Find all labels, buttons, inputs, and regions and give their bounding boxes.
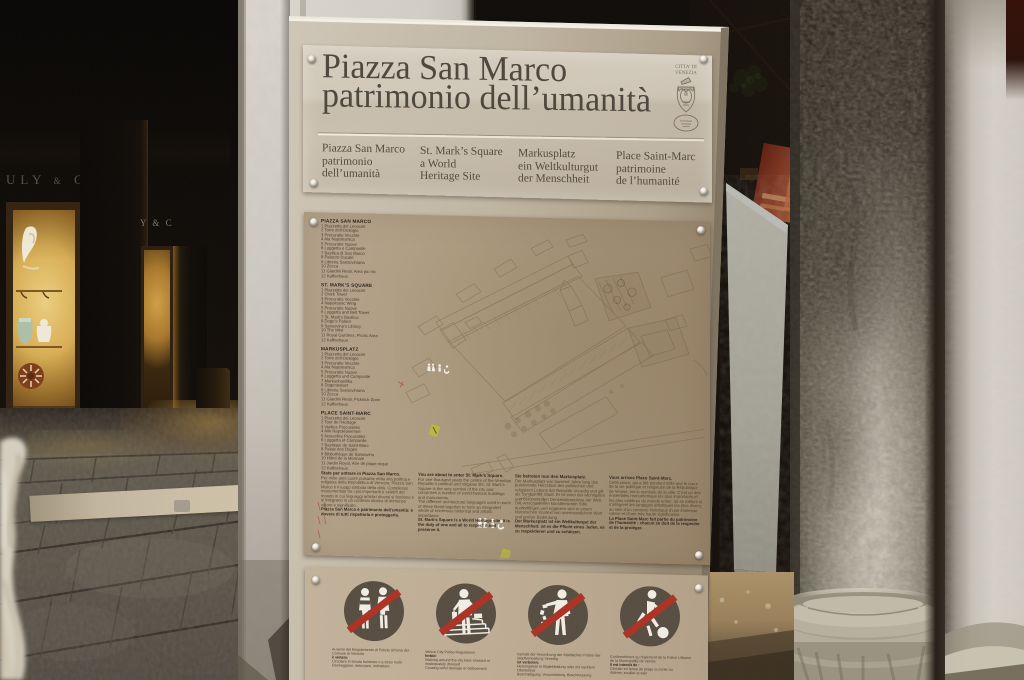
- svg-text:CITTA’ DI: CITTA’ DI: [675, 65, 697, 70]
- svg-text:VENEZIA: VENEZIA: [675, 71, 697, 76]
